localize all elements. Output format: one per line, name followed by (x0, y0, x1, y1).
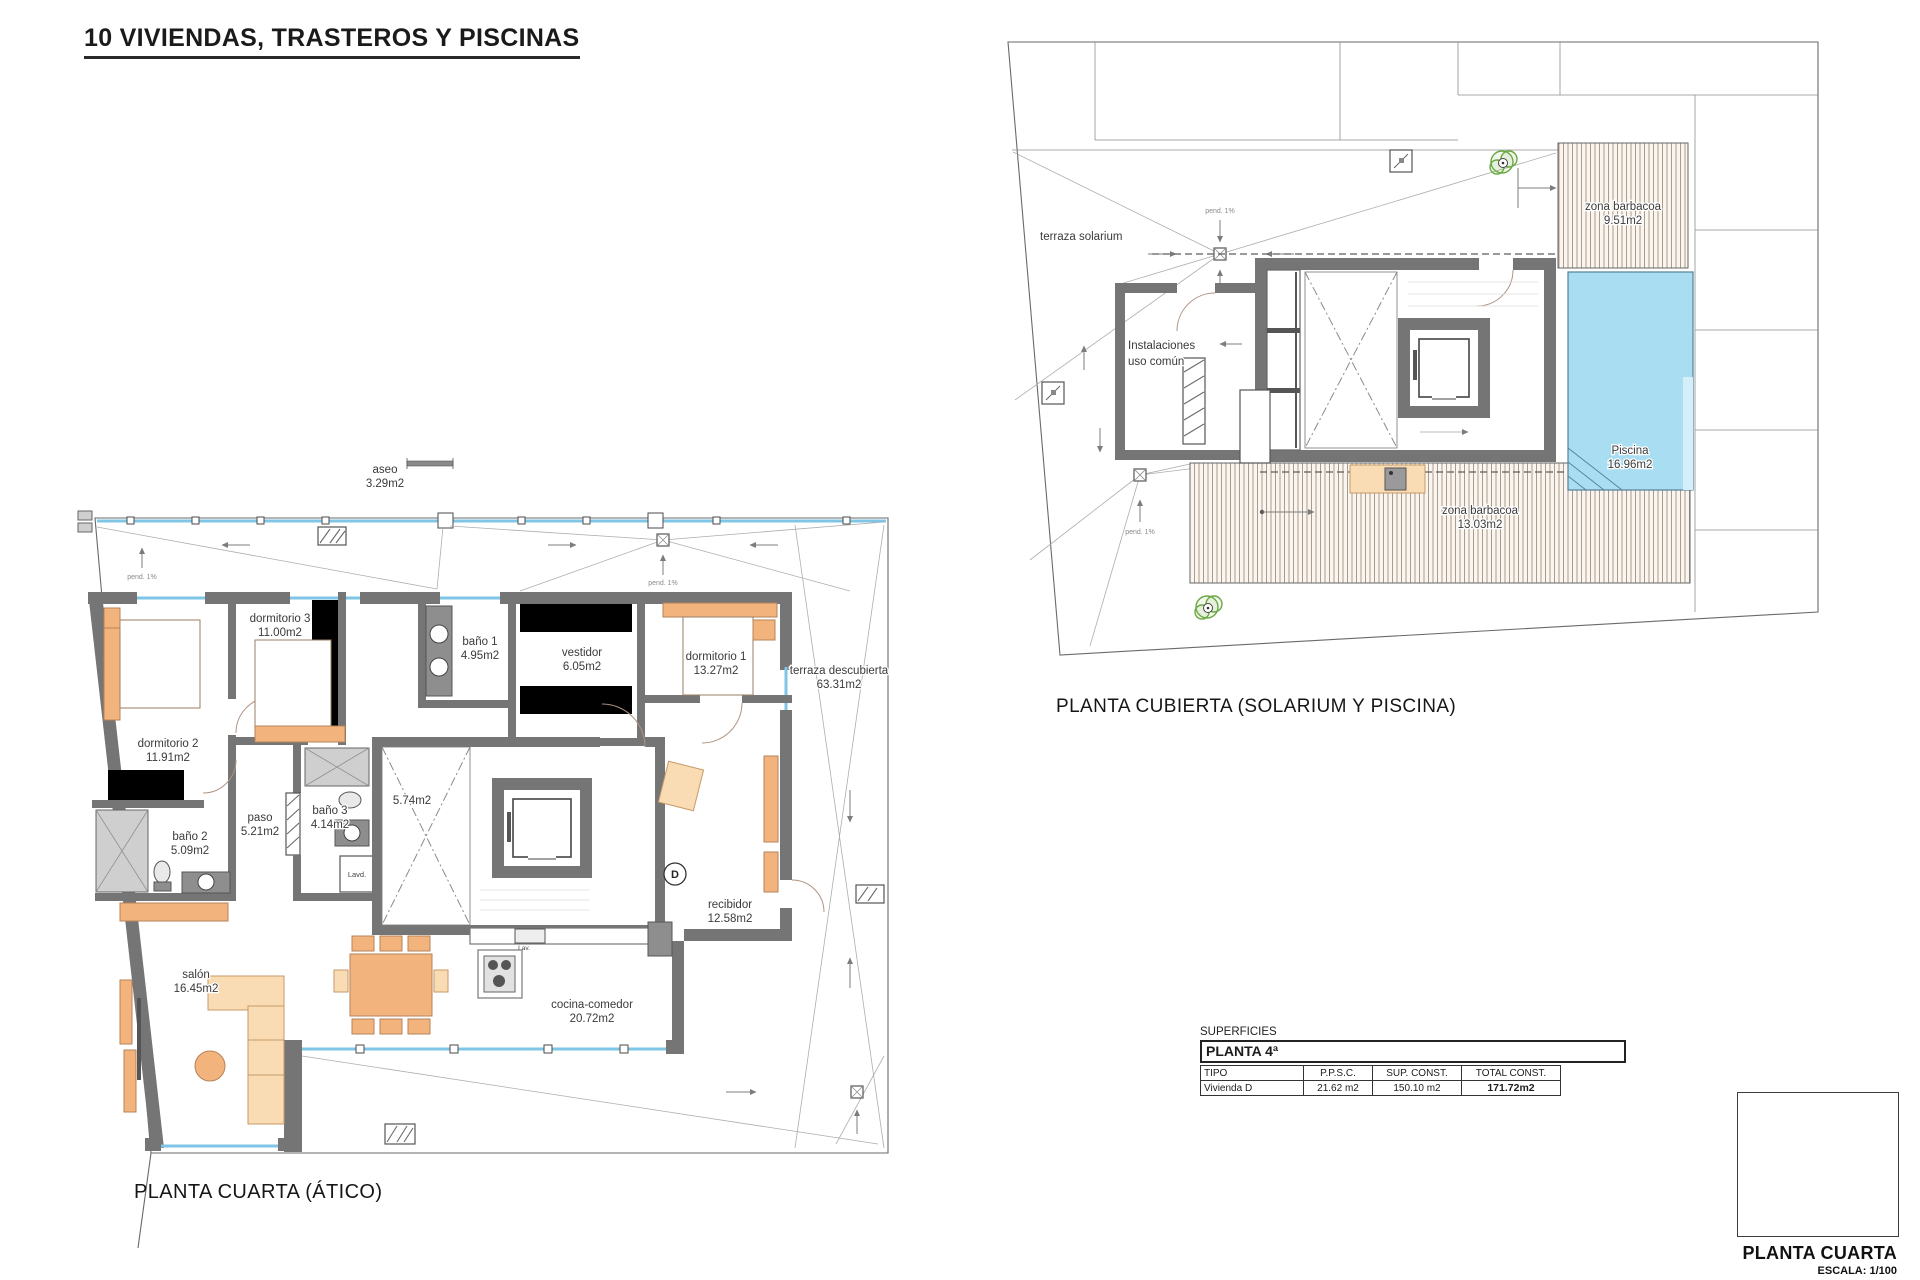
drawing-sheet: 10 VIVIENDAS, TRASTEROS Y PISCINAS (0, 0, 1920, 1280)
svg-text:3.29m2: 3.29m2 (366, 478, 404, 490)
pend-annotation: pend. 1% (648, 580, 678, 587)
col-header-sup: SUP. CONST. (1373, 1066, 1462, 1081)
stair-elevator-core (1255, 258, 1556, 462)
roof-slope-lines (97, 522, 884, 591)
svg-text:baño 2: baño 2 (172, 831, 207, 843)
shower-icon (1490, 151, 1517, 174)
graphic-scale-bar (407, 458, 453, 469)
drain-icon (1390, 150, 1412, 172)
floor-plan-atico: aseo 3.29m2 (78, 458, 889, 1248)
bed (120, 620, 200, 708)
svg-text:baño 3: baño 3 (312, 805, 347, 817)
tv (137, 998, 141, 1080)
table-header-row: TIPO P.P.S.C. SUP. CONST. TOTAL CONST. (1201, 1066, 1561, 1081)
vent-grille (318, 527, 346, 545)
dining-set (334, 936, 448, 1034)
pend-annotation: pend. 1% (1205, 208, 1235, 215)
deck-landing (1240, 390, 1270, 463)
zone-label-solarium: terraza solarium (1040, 231, 1122, 243)
cell-tipo: Vivienda D (1201, 1081, 1304, 1096)
svg-text:terraza descubierta: terraza descubierta (790, 665, 889, 677)
sideboard (764, 756, 778, 842)
instalaciones-room: Instalaciones uso común (1115, 283, 1255, 460)
table-row: Vivienda D 21.62 m2 150.10 m2 171.72m2 (1201, 1081, 1561, 1096)
fridge (648, 922, 672, 956)
room-label-aseo: aseo (373, 464, 398, 476)
tv-unit (120, 980, 132, 1044)
cell-sup: 150.10 m2 (1373, 1081, 1462, 1096)
laundry-closet: Lavd. (340, 856, 374, 892)
svg-text:12.58m2: 12.58m2 (708, 913, 753, 925)
svg-text:baño 1: baño 1 (462, 636, 497, 648)
elevator (492, 778, 592, 878)
svg-text:4.14m2: 4.14m2 (311, 819, 349, 831)
svg-text:6.05m2: 6.05m2 (563, 661, 601, 673)
nightstand (753, 620, 775, 640)
svg-text:dormitorio 2: dormitorio 2 (138, 738, 199, 750)
storage-closets (1267, 270, 1300, 450)
label-lavadero: Lavd. (348, 870, 366, 879)
vent-grille (856, 885, 884, 903)
svg-text:cocina-comedor: cocina-comedor (551, 999, 633, 1011)
zone-label-piscina: Piscina (1611, 445, 1649, 457)
svg-text:recibidor: recibidor (708, 899, 752, 911)
zone-label-barbacoa2: zona barbacoa (1442, 505, 1519, 517)
svg-text:paso: paso (248, 812, 273, 824)
svg-text:11.91m2: 11.91m2 (146, 752, 190, 764)
pouf (195, 1051, 225, 1081)
plan-caption-cubierta: PLANTA CUBIERTA (SOLARIUM Y PISCINA) (1056, 696, 1456, 717)
plan-caption-atico: PLANTA CUARTA (ÁTICO) (134, 1180, 382, 1203)
closet-vestidor (520, 604, 632, 632)
surfaces-section-label: SUPERFICIES (1200, 1026, 1630, 1038)
recibidor-zone: D (658, 756, 778, 892)
svg-text:20.72m2: 20.72m2 (570, 1013, 615, 1025)
col-header-tipo: TIPO (1201, 1066, 1304, 1081)
zone-label-barbacoa1: zona barbacoa (1585, 201, 1662, 213)
pend-annotation: pend. 1% (1125, 529, 1155, 536)
sofa (248, 1006, 284, 1124)
pool: Piscina 16.96m2 (1568, 272, 1693, 490)
svg-text:63.31m2: 63.31m2 (817, 679, 862, 691)
unit-letter: D (671, 869, 679, 881)
surfaces-data-table: TIPO P.P.S.C. SUP. CONST. TOTAL CONST. V… (1200, 1065, 1561, 1096)
kitchen-zone: Lav. (470, 922, 672, 998)
vent-shaft (286, 793, 300, 855)
svg-text:16.45m2: 16.45m2 (174, 983, 219, 995)
bed (255, 640, 331, 730)
tv-unit (124, 1050, 136, 1112)
cell-ppsc: 21.62 m2 (1304, 1081, 1373, 1096)
plans-canvas: aseo 3.29m2 (0, 0, 1920, 1280)
svg-text:salón: salón (182, 969, 210, 981)
cell-total: 171.72m2 (1462, 1081, 1561, 1096)
lower-terrace (302, 1056, 884, 1144)
elevator (1398, 318, 1490, 418)
svg-text:4.95m2: 4.95m2 (461, 650, 499, 662)
side-terrace (792, 525, 884, 1148)
closet-vestidor (520, 686, 632, 714)
surfaces-floor-title: PLANTA 4ª (1200, 1040, 1626, 1063)
kitchen-sink (515, 929, 545, 943)
surfaces-table: SUPERFICIES PLANTA 4ª TIPO P.P.S.C. SUP.… (1200, 1026, 1630, 1096)
pend-annotation: pend. 1% (127, 574, 157, 581)
svg-text:5.21m2: 5.21m2 (241, 826, 279, 838)
bbq-counter (1350, 465, 1425, 493)
armchair (658, 761, 703, 810)
svg-text:dormitorio 3: dormitorio 3 (250, 613, 311, 625)
vent-shaft (1183, 358, 1205, 444)
svg-text:uso común: uso común (1128, 356, 1184, 368)
console (120, 903, 228, 921)
stair-void (1305, 272, 1397, 448)
shower-icon (1195, 596, 1222, 619)
vent-grille (385, 1124, 415, 1144)
svg-text:13.27m2: 13.27m2 (694, 665, 739, 677)
stair-void (382, 747, 470, 925)
keyplan-scale: ESCALA: 1/100 (1640, 1265, 1897, 1277)
svg-text:5.09m2: 5.09m2 (171, 845, 209, 857)
svg-text:vestidor: vestidor (562, 647, 602, 659)
dining-table (350, 954, 432, 1016)
col-header-ppsc: P.P.S.C. (1304, 1066, 1373, 1081)
room-label-instalaciones: Instalaciones (1128, 340, 1195, 352)
closet-dorm2 (108, 770, 184, 800)
bed-foot-bench (255, 726, 345, 742)
col-header-total: TOTAL CONST. (1462, 1066, 1561, 1081)
sideboard (764, 852, 778, 892)
svg-text:9.51m2: 9.51m2 (1604, 215, 1642, 227)
keyplan-caption: PLANTA CUARTA (1640, 1243, 1897, 1264)
svg-text:11.00m2: 11.00m2 (258, 627, 302, 639)
svg-text:13.03m2: 13.03m2 (1458, 519, 1503, 531)
svg-text:16.96m2: 16.96m2 (1608, 459, 1653, 471)
cooktop-island (478, 950, 522, 998)
svg-text:dormitorio 1: dormitorio 1 (686, 651, 747, 663)
keyplan-frame (1737, 1092, 1899, 1237)
floor-plan-cubierta: pend. 1% pend. 1% (1008, 42, 1818, 717)
sofa (208, 976, 284, 1010)
svg-text:5.74m2: 5.74m2 (393, 795, 431, 807)
headboard (663, 603, 777, 617)
drain-icon (1042, 382, 1064, 404)
barbacoa-deck-upper: zona barbacoa 9.51m2 (1518, 143, 1688, 268)
unit-marker: D (664, 863, 686, 885)
